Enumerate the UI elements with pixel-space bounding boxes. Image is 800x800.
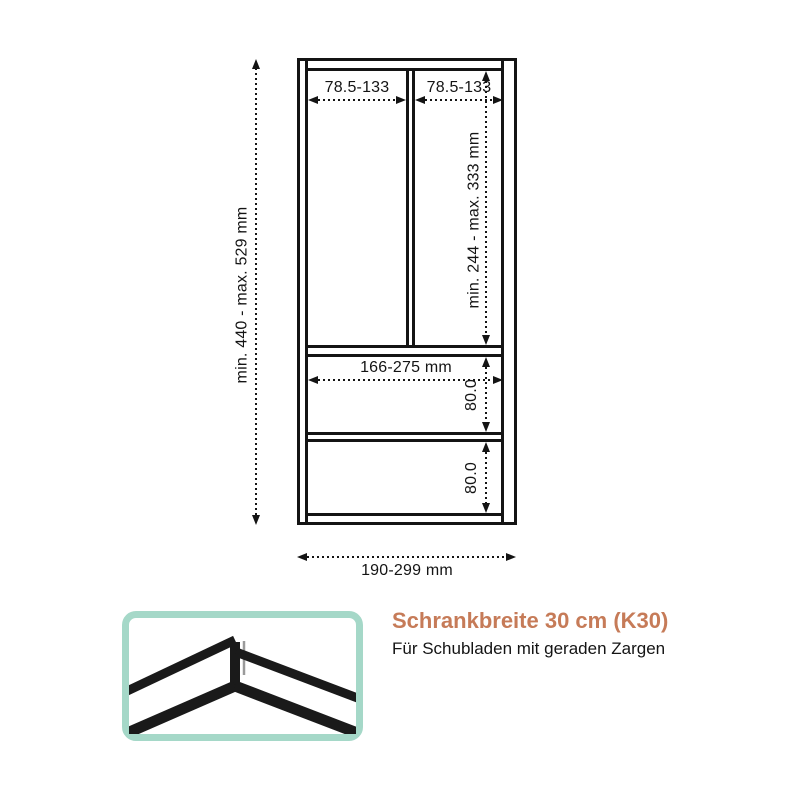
cabinet-divider2-line-2	[308, 439, 501, 442]
arrowhead-right-icon	[506, 553, 516, 561]
dim-line	[485, 367, 487, 423]
arrowhead-right-icon	[493, 96, 503, 104]
dim-label-lower-drawer-height: 80.0	[463, 458, 481, 498]
cabinet-divider2-line-1	[308, 432, 501, 435]
icon-lower-left-edge	[129, 686, 235, 734]
dim-line	[485, 81, 487, 336]
dim-line	[255, 68, 257, 516]
caption-title: Schrankbreite 30 cm (K30)	[392, 608, 668, 634]
cabinet-shelf-line-1	[308, 345, 501, 348]
arrowhead-left-icon	[297, 553, 307, 561]
drawer-type-icon-box	[122, 611, 363, 741]
dim-line	[318, 99, 398, 101]
dim-label-total-height: min. 440 - max. 529 mm	[234, 198, 252, 393]
dim-label-upper-drawer-height: 80.0	[463, 375, 481, 415]
arrowhead-down-icon	[482, 335, 490, 345]
cabinet-left-panel-line	[305, 61, 308, 522]
caption-subtitle: Für Schubladen mit geraden Zargen	[392, 639, 665, 659]
dim-line	[485, 452, 487, 504]
cabinet-top-rail-line	[308, 68, 501, 71]
icon-upper-left-edge	[129, 640, 235, 692]
arrowhead-up-icon	[482, 442, 490, 452]
arrowhead-up-icon	[482, 71, 490, 81]
arrowhead-left-icon	[308, 96, 318, 104]
arrowhead-left-icon	[308, 376, 318, 384]
dim-line	[425, 99, 494, 101]
arrowhead-right-icon	[396, 96, 406, 104]
product-dimension-diagram: min. 440 - max. 529 mm 78.5-133 78.5-133…	[0, 0, 800, 800]
cabinet-bottom-panel-line	[308, 513, 501, 516]
dim-label-top-left-width: 78.5-133	[308, 79, 406, 97]
dim-line	[307, 556, 507, 558]
dim-label-outer-width: 190-299 mm	[297, 562, 517, 580]
arrowhead-down-icon	[482, 422, 490, 432]
cabinet-shelf-line-2	[308, 354, 501, 357]
cabinet-center-divider-line-2	[412, 71, 415, 345]
arrowhead-right-icon	[493, 376, 503, 384]
arrowhead-down-icon	[252, 515, 260, 525]
arrowhead-left-icon	[415, 96, 425, 104]
arrowhead-down-icon	[482, 503, 490, 513]
arrowhead-up-icon	[482, 357, 490, 367]
cabinet-right-panel-line	[501, 61, 504, 522]
dim-label-top-right-width: 78.5-133	[415, 79, 503, 97]
straight-drawer-sides-corner-icon	[129, 618, 356, 734]
cabinet-center-divider-line-1	[406, 71, 409, 345]
dim-label-upper-compartment-height: min. 244 - max. 333 mm	[466, 123, 484, 318]
